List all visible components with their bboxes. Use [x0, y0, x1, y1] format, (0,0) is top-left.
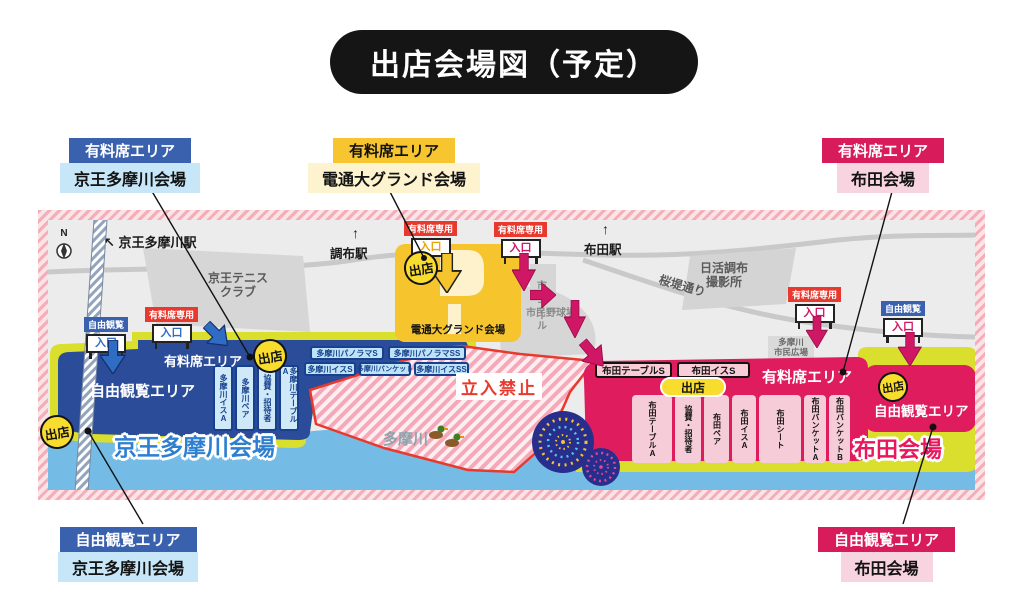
- seat-box: 協賛・招待者: [257, 365, 277, 431]
- entry-arrow-icon: [100, 340, 126, 374]
- route-arrow-icon: [564, 300, 586, 338]
- entrance-sign: 入口: [152, 324, 192, 343]
- area-type-label: 有料席エリア: [822, 138, 944, 163]
- entry-arrow-icon: [806, 316, 828, 348]
- paid-only-tag: 有料席専用: [404, 221, 457, 236]
- station-fuda: 布田駅: [584, 239, 622, 258]
- station-keio-tamagawa: ↖ 京王多摩川駅: [104, 232, 197, 251]
- seat-box: 布田イスA: [732, 395, 756, 463]
- arrow-up-icon: ↑: [602, 221, 609, 237]
- compass-needle-icon: [56, 239, 72, 261]
- venue-name: 京王多摩川会場: [60, 163, 200, 193]
- callout-paid-keio: 有料席エリア 京王多摩川会場: [60, 138, 200, 193]
- area-type-label: 自由観覧エリア: [60, 527, 197, 552]
- river-label: 多摩川: [383, 428, 428, 449]
- venue-name: 布田会場: [837, 163, 929, 193]
- arrow-northwest-icon: ↖: [104, 235, 115, 250]
- keio-paid-area-label: 有料席エリア: [164, 351, 242, 370]
- keio-free-area-label: 自由観覧エリア: [90, 380, 195, 401]
- callout-free-fuda: 自由観覧エリア 布田会場: [818, 527, 955, 582]
- seat-box: 布田バンケットA: [804, 395, 826, 463]
- fuda-free-area-label: 自由観覧エリア: [874, 400, 969, 420]
- venue-name: 電通大グランド会場: [308, 163, 480, 193]
- area-type-label: 有料席エリア: [69, 138, 191, 163]
- arrow-up-icon: ↑: [352, 225, 359, 241]
- route-arrow-icon: [530, 282, 556, 308]
- fuda-free-zone: [864, 365, 975, 432]
- paid-only-tag: 有料席専用: [145, 307, 198, 322]
- seat-box: 布田ペア: [704, 395, 729, 463]
- venue-name: 京王多摩川会場: [58, 552, 198, 582]
- seat-box: 多摩川イスS: [304, 362, 356, 376]
- venue-map: N ↖ 京王多摩川駅 ↑ 調布駅 ↑ 布田駅 京王テニス クラブ 日活調布 撮影…: [38, 210, 985, 500]
- callout-free-keio: 自由観覧エリア 京王多摩川会場: [58, 527, 198, 582]
- callout-paid-dentsu: 有料席エリア 電通大グランド会場: [308, 138, 480, 193]
- fuda-paid-area-label: 有料席エリア: [762, 366, 852, 387]
- paid-only-tag: 有料席専用: [494, 222, 547, 237]
- seat-box: 布田テーブルA: [632, 395, 672, 463]
- area-type-label: 有料席エリア: [333, 138, 455, 163]
- compass-n-label: N: [60, 228, 67, 239]
- seat-box: 多摩川パノラマSS: [388, 346, 466, 360]
- fireworks-icon: [582, 448, 620, 486]
- dentsu-venue-label: 電通大グランド会場: [396, 322, 520, 337]
- venue-name: 布田会場: [841, 552, 933, 582]
- seat-box: 多摩川バンケット: [359, 362, 411, 376]
- plaza-label: 多摩川 市民広場: [774, 338, 808, 358]
- shop-badge: 出店: [660, 377, 726, 397]
- keio-venue-name: 京王多摩川会場: [114, 428, 275, 462]
- area-type-label: 自由観覧エリア: [818, 527, 955, 552]
- seat-box: 布田バンケットB: [829, 395, 850, 463]
- no-entry-label: 立入禁止: [456, 373, 542, 400]
- page-title: 出店会場図（予定）: [330, 30, 698, 94]
- free-view-tag: 自由観覧: [881, 301, 925, 316]
- seat-box: 多摩川パノラマS: [310, 346, 384, 360]
- entry-arrow-icon: [898, 332, 922, 366]
- paid-only-tag: 有料席専用: [788, 287, 841, 302]
- tennis-club-label: 京王テニス クラブ: [208, 272, 268, 300]
- compass: N: [56, 228, 72, 261]
- seat-box: 多摩川ペア: [235, 365, 255, 431]
- seat-box: 多摩川イスA: [213, 365, 233, 431]
- seat-box: 布田イスS: [677, 362, 750, 378]
- seat-box: 協賛・招待者: [675, 395, 701, 463]
- seat-box: 布田テーブルS: [595, 362, 672, 378]
- callout-paid-fuda: 有料席エリア 布田会場: [822, 138, 944, 193]
- seat-box: 布田シート: [759, 395, 801, 463]
- gate-paid-keio: 有料席専用 入口: [145, 307, 198, 343]
- station-chofu: 調布駅: [330, 243, 368, 262]
- fuda-venue-name: 布田会場: [854, 432, 942, 464]
- free-view-tag: 自由観覧: [84, 317, 128, 332]
- seat-box: 多摩川テーブルA: [279, 365, 299, 431]
- gate-paid-dentsu: 有料席専用 入口: [404, 221, 457, 257]
